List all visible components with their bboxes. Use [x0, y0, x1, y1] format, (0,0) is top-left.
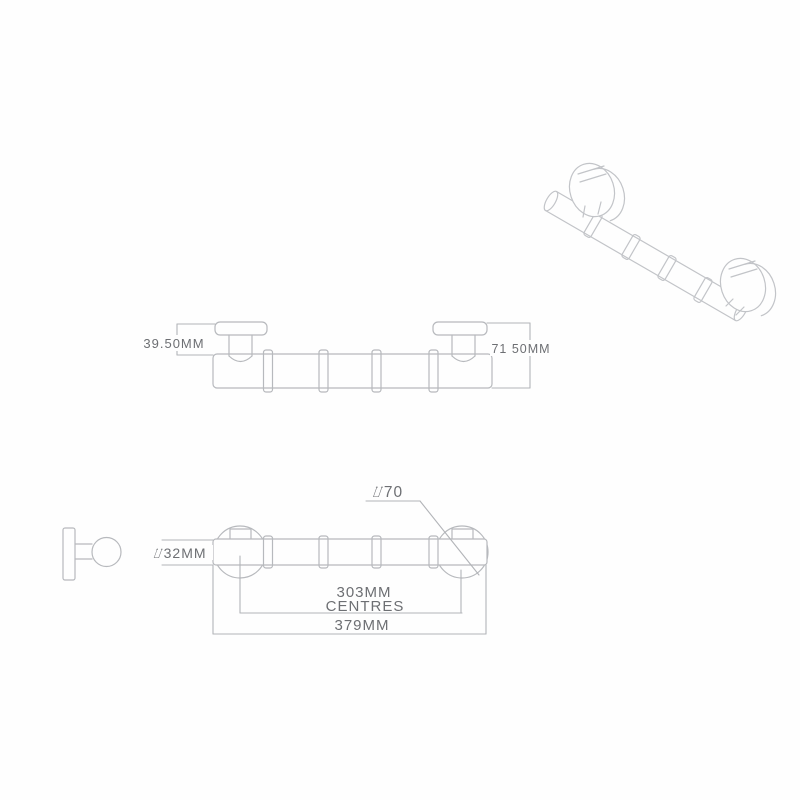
dim-flange-diameter-label: ⌰70 — [373, 484, 403, 501]
side-bar — [213, 354, 492, 388]
iso-bar-endcap-left — [542, 189, 561, 213]
dim-flange-height-label: 39.50MM — [143, 336, 204, 351]
dim-centres-word-label: CENTRES — [326, 598, 405, 615]
side-mount-left — [215, 322, 267, 362]
front-stem-right — [452, 529, 473, 539]
side-grip-rings — [264, 350, 439, 392]
dim-overall-height-label: 71 50MM — [491, 342, 550, 356]
iso-wall-flange-right — [714, 253, 776, 318]
front-stem-left — [230, 529, 251, 539]
side-mount-right — [433, 322, 487, 362]
side-mount-right-plate — [433, 322, 487, 335]
dimension-bar-diameter: ⌰32MM — [147, 540, 213, 565]
iso-wall-flange-left — [563, 158, 625, 223]
dim-overall-length-label: 379MM — [334, 617, 389, 634]
iso-bar — [542, 189, 751, 323]
dim-bar-diameter-label: ⌰32MM — [153, 545, 206, 561]
isometric-view — [542, 158, 776, 323]
side-mount-left-plate — [215, 322, 267, 335]
side-elevation-view: 39.50MM 71 50MM — [141, 322, 552, 392]
front-plan-view: ⌰32MM ⌰70 303MM CENTRES 379MM — [147, 484, 488, 634]
dimension-flange-height: 39.50MM — [141, 324, 215, 355]
drawing-page: 39.50MM 71 50MM — [0, 0, 800, 800]
grab-rail-technical-drawing: 39.50MM 71 50MM — [0, 0, 800, 800]
dimension-overall-height: 71 50MM — [487, 323, 552, 388]
iso-grip-rings — [583, 212, 713, 304]
end-wall-plate — [63, 528, 75, 580]
end-profile-view — [63, 528, 121, 580]
end-bar-section — [92, 538, 121, 567]
front-bar — [213, 539, 487, 565]
